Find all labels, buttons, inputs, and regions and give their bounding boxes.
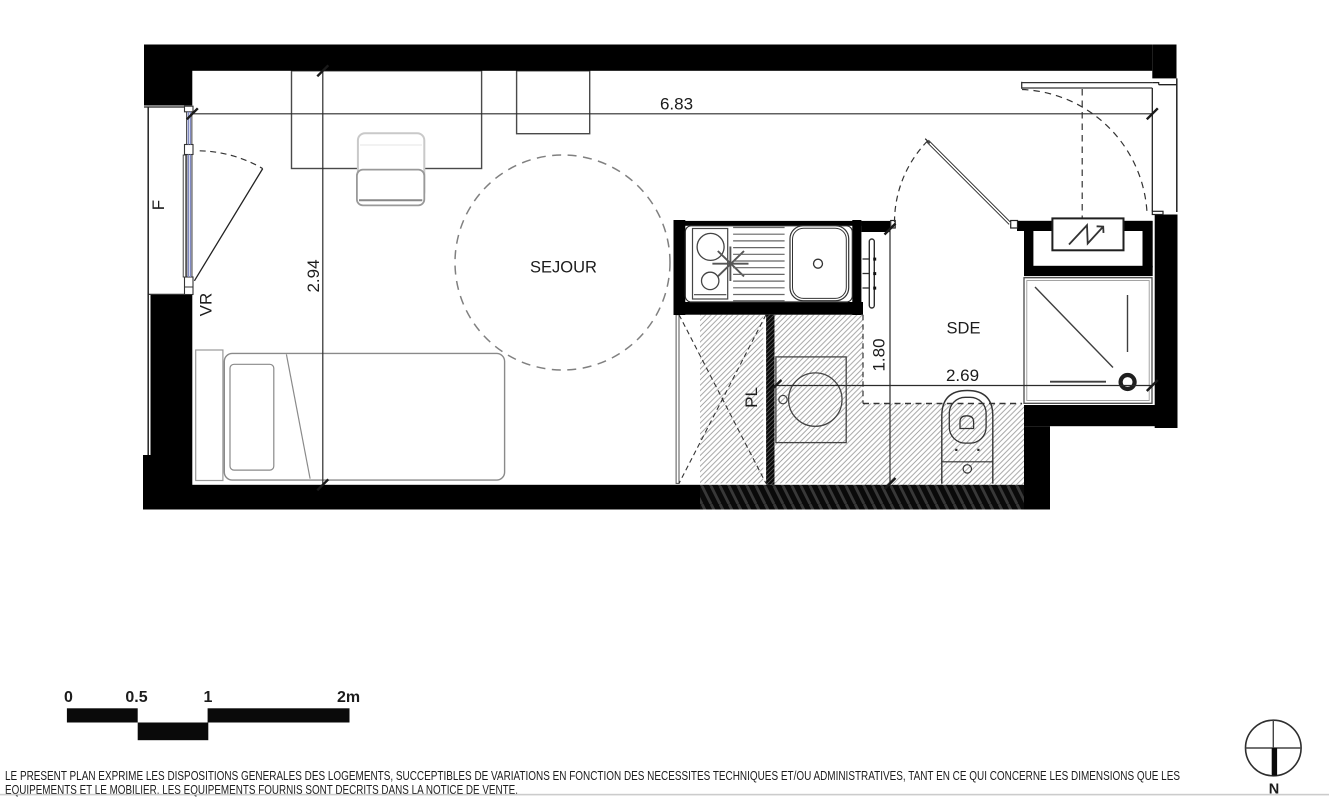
svg-text:0: 0 bbox=[64, 689, 73, 706]
svg-text:LE PRESENT PLAN EXPRIME LES DI: LE PRESENT PLAN EXPRIME LES DISPOSITIONS… bbox=[5, 769, 1180, 783]
svg-text:PL: PL bbox=[742, 387, 761, 408]
svg-text:N: N bbox=[1269, 782, 1279, 798]
svg-text:2.69: 2.69 bbox=[946, 366, 979, 385]
svg-text:0.5: 0.5 bbox=[125, 689, 147, 706]
svg-text:1.80: 1.80 bbox=[870, 338, 889, 371]
svg-text:SEJOUR: SEJOUR bbox=[530, 259, 597, 277]
svg-text:SDE: SDE bbox=[947, 320, 981, 338]
svg-text:1: 1 bbox=[204, 689, 213, 706]
svg-text:6.83: 6.83 bbox=[660, 95, 693, 114]
svg-text:2.94: 2.94 bbox=[304, 259, 323, 292]
svg-text:F: F bbox=[149, 200, 168, 210]
svg-text:VR: VR bbox=[197, 293, 216, 317]
svg-text:2m: 2m bbox=[337, 689, 360, 706]
